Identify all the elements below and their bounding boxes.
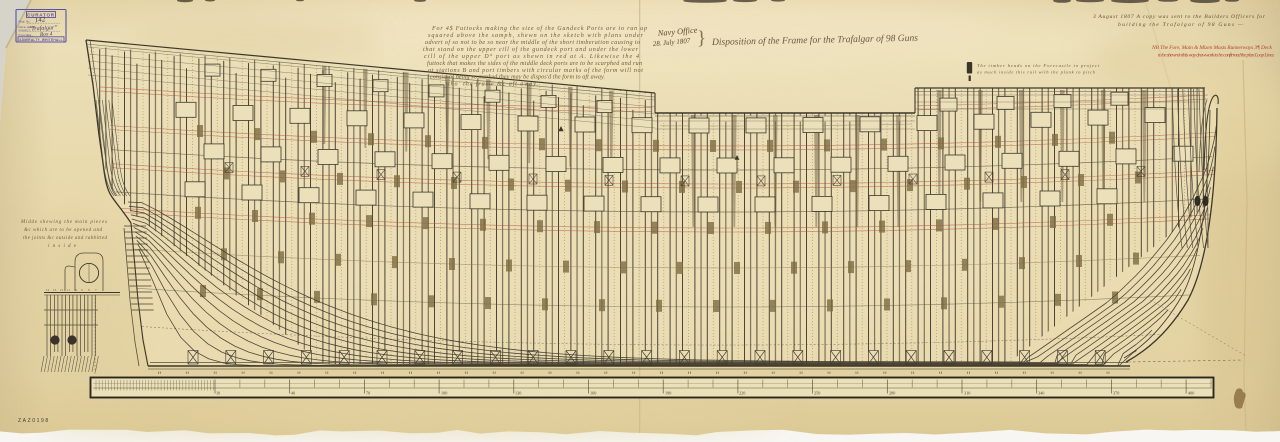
svg-text:11: 11 bbox=[67, 288, 70, 292]
svg-text:70: 70 bbox=[366, 391, 370, 396]
svg-text:Regt. No.: Regt. No. bbox=[19, 20, 31, 24]
svg-text:250: 250 bbox=[814, 391, 820, 396]
svg-text:370: 370 bbox=[1113, 391, 1119, 396]
svg-text:the joints &c outside and rabb: the joints &c outside and rabbitted bbox=[23, 236, 107, 241]
svg-text:190: 190 bbox=[665, 391, 671, 396]
svg-text:40: 40 bbox=[291, 391, 295, 396]
svg-text:}: } bbox=[697, 28, 706, 49]
svg-text:12: 12 bbox=[60, 288, 64, 292]
svg-text:280: 280 bbox=[889, 391, 895, 396]
svg-text:Press Mark: Press Mark bbox=[19, 34, 32, 37]
svg-text:310: 310 bbox=[964, 391, 970, 396]
svg-text:160: 160 bbox=[590, 391, 596, 396]
svg-text:Box 4: Box 4 bbox=[40, 31, 53, 38]
svg-text:building the Trafalgar of 98: building the Trafalgar of 98 Guns — bbox=[1118, 21, 1244, 28]
svg-text:130: 130 bbox=[515, 391, 521, 396]
svg-text:squared above the samph, shew: squared above the samph, shewn on the sk… bbox=[428, 33, 644, 39]
svg-text:3 August 1807 A copy was sent: 3 August 1807 A copy was sent to the Bui… bbox=[1092, 13, 1266, 20]
svg-text:10: 10 bbox=[74, 288, 78, 292]
svg-text:142: 142 bbox=[34, 15, 46, 24]
svg-text:100: 100 bbox=[441, 391, 447, 396]
svg-text:that stand on the upper cill o: that stand on the upper cill of the gund… bbox=[423, 46, 639, 53]
svg-text:Midde shewing the main pieces: Midde shewing the main pieces bbox=[20, 220, 107, 225]
svg-text:cill of the upper D° port as s: cill of the upper D° port as shewn in re… bbox=[424, 53, 639, 60]
svg-text:to be shewn in this way drawwo: to be shewn in this way drawwork to be c… bbox=[1158, 52, 1274, 59]
svg-text:&c which are to be opened and: &c which are to be opened and bbox=[24, 228, 103, 233]
svg-text:10: 10 bbox=[216, 391, 220, 396]
svg-text:The timber heads on the Foreca: The timber heads on the Forecastle to pr… bbox=[977, 63, 1100, 68]
svg-text:tho' the frame &c aft away.: tho' the frame &c aft away. bbox=[448, 81, 538, 88]
svg-text:ZAZ0198: ZAZ0198 bbox=[18, 418, 50, 424]
svg-text:14: 14 bbox=[46, 288, 50, 292]
svg-text:at stations B and port timbers: at stations B and port timbers with circ… bbox=[428, 67, 643, 74]
svg-text:consist of being so marked the: consist of being so marked they may be d… bbox=[430, 74, 605, 81]
svg-text:futtock that makes the sides o: futtock that makes the sides of the midd… bbox=[427, 60, 642, 67]
svg-text:13: 13 bbox=[53, 288, 57, 292]
svg-text:ADMIRALTY, WHITEHALL: ADMIRALTY, WHITEHALL bbox=[19, 38, 63, 42]
svg-text:For 4$ Futtocks making the siz: For 4$ Futtocks making the size of the G… bbox=[431, 25, 647, 32]
svg-text:as much inside this rail with: as much inside this rail with the plank … bbox=[977, 70, 1096, 75]
svg-text:advert of so not to be so near: advert of so not to be so near the middl… bbox=[425, 39, 640, 46]
svg-text:400: 400 bbox=[1188, 391, 1194, 396]
svg-text:340: 340 bbox=[1038, 391, 1044, 396]
svg-text:NB The Fore, Main & Mizen Mas: NB The Fore, Main & Mizen Masts Runnerwa… bbox=[1151, 45, 1273, 51]
svg-text:220: 220 bbox=[739, 391, 745, 396]
